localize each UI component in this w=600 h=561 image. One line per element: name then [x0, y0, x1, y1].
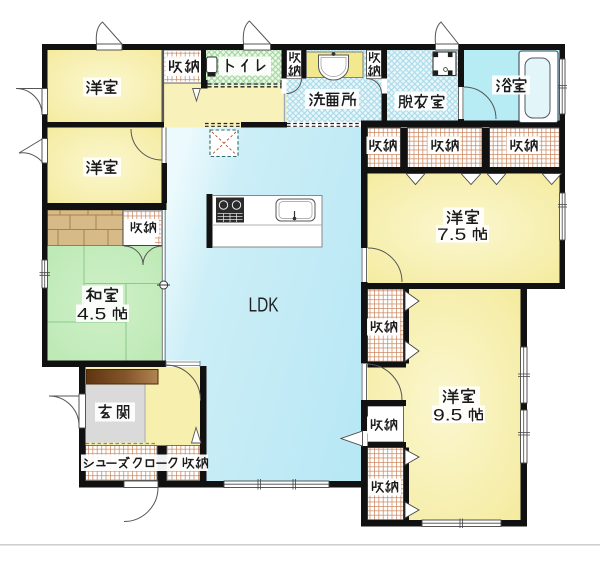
svg-text:7.5: 7.5: [437, 226, 466, 244]
svg-text:LDK: LDK: [249, 294, 279, 317]
svg-text:4.5: 4.5: [77, 306, 106, 324]
svg-text:9.5: 9.5: [433, 407, 462, 425]
